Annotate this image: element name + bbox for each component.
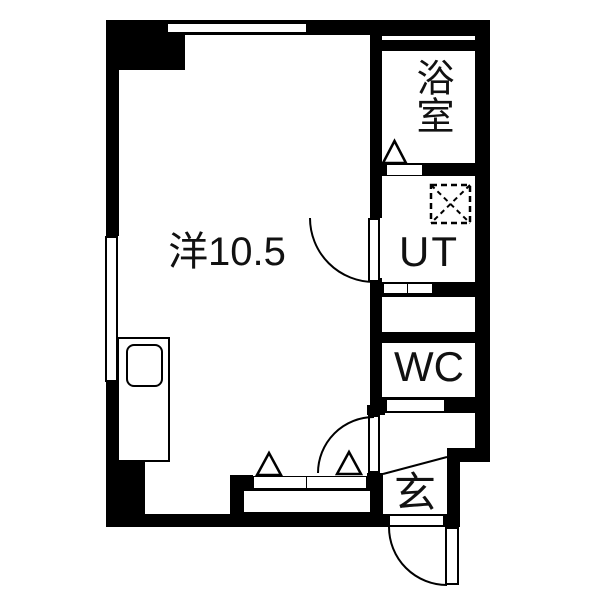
wall-column-left-upper bbox=[370, 35, 382, 218]
wall-entrance-right bbox=[447, 462, 460, 514]
wall-hall-toilet-divider bbox=[370, 332, 490, 343]
room-label-utility: UT bbox=[383, 230, 475, 274]
utility-sliding-door-left bbox=[383, 283, 408, 294]
entrance-door-swing-arc bbox=[318, 417, 374, 473]
room-label-entrance: 玄 bbox=[383, 471, 447, 515]
wall-closet-stub-left bbox=[230, 475, 253, 490]
wall-closet-edge-left bbox=[230, 490, 242, 514]
bath-door-sill bbox=[386, 164, 423, 176]
toilet-door-sill bbox=[386, 399, 445, 412]
room-label-bath: 浴室 bbox=[408, 58, 452, 148]
window-bath-slit bbox=[382, 36, 475, 40]
front-door-leaf bbox=[445, 527, 459, 585]
closet-door-marker-triangle-left bbox=[257, 453, 281, 475]
wall-pillar-top-left bbox=[106, 35, 185, 70]
utility-door-leaf bbox=[368, 218, 380, 282]
room-label-main: 洋10.5 bbox=[147, 231, 307, 273]
window-top bbox=[166, 22, 308, 34]
washing-machine-cross-1 bbox=[431, 185, 470, 223]
wall-closet-stub-right bbox=[367, 473, 383, 490]
room-label-toilet: WC bbox=[383, 345, 475, 389]
entrance-door-leaf bbox=[368, 415, 380, 473]
wall-left-upper bbox=[106, 70, 119, 236]
wall-entrance-right-band bbox=[447, 448, 490, 462]
floorplan: 洋10.5 浴室 UT WC 玄 bbox=[0, 0, 600, 600]
closet-base bbox=[242, 489, 372, 514]
closet-track-right bbox=[306, 476, 367, 489]
utility-door-swing-arc bbox=[310, 218, 374, 282]
front-door-swing-arc bbox=[389, 527, 447, 585]
wall-right bbox=[475, 20, 490, 462]
utility-sliding-door-right bbox=[407, 283, 433, 294]
kitchen-sink bbox=[126, 344, 163, 387]
washing-machine-outline bbox=[431, 185, 470, 223]
bath-door-marker-triangle bbox=[383, 141, 406, 163]
closet-door-marker-triangle-right bbox=[337, 452, 361, 474]
washing-machine-icon bbox=[431, 185, 470, 223]
closet-track-left bbox=[253, 476, 308, 489]
washing-machine-cross-2 bbox=[431, 185, 470, 223]
